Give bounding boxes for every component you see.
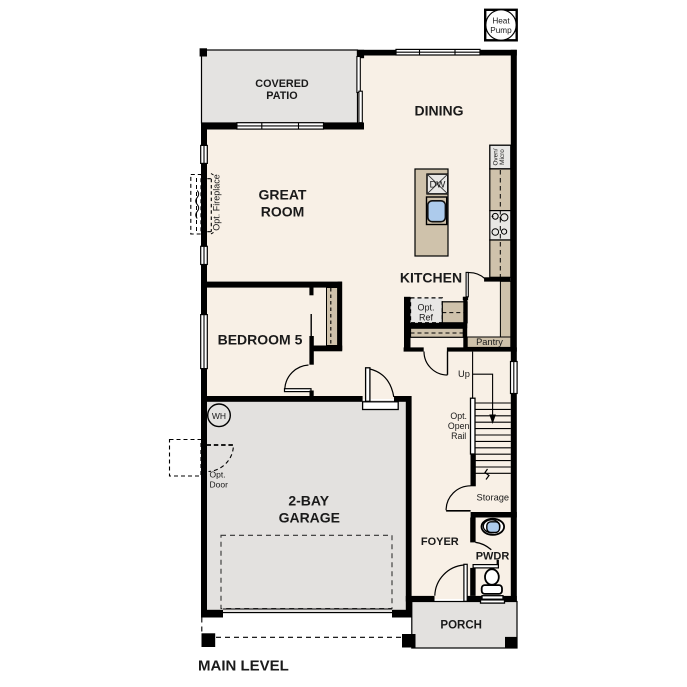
- svg-text:GARAGE: GARAGE: [279, 510, 340, 526]
- svg-text:Open: Open: [448, 421, 470, 431]
- svg-text:DW: DW: [429, 180, 445, 191]
- svg-text:BEDROOM 5: BEDROOM 5: [218, 331, 303, 347]
- svg-text:Storage: Storage: [477, 492, 510, 502]
- svg-text:DINING: DINING: [415, 103, 464, 119]
- svg-text:ROOM: ROOM: [261, 204, 305, 220]
- svg-text:PWDR: PWDR: [476, 551, 510, 563]
- svg-text:FOYER: FOYER: [421, 536, 459, 548]
- svg-text:MAIN LEVEL: MAIN LEVEL: [198, 658, 289, 675]
- svg-text:Pump: Pump: [490, 26, 512, 35]
- svg-text:GREAT: GREAT: [259, 187, 307, 203]
- svg-text:WH: WH: [212, 411, 226, 421]
- svg-text:Ref: Ref: [419, 313, 434, 323]
- svg-text:KITCHEN: KITCHEN: [400, 270, 462, 286]
- svg-text:Heat: Heat: [492, 16, 510, 25]
- svg-text:Opt.: Opt.: [450, 411, 467, 421]
- svg-text:PATIO: PATIO: [266, 90, 297, 102]
- svg-text:PORCH: PORCH: [440, 620, 482, 632]
- svg-text:COVERED: COVERED: [255, 78, 309, 90]
- svg-text:Up: Up: [458, 369, 470, 379]
- svg-text:Micro: Micro: [499, 149, 506, 165]
- svg-text:Opt.: Opt.: [210, 470, 226, 480]
- svg-text:Opt.: Opt.: [417, 303, 434, 313]
- svg-text:Pantry: Pantry: [476, 337, 503, 347]
- svg-text:2-BAY: 2-BAY: [288, 493, 329, 509]
- svg-text:Opt. Fireplace: Opt. Fireplace: [212, 174, 222, 231]
- svg-text:Rail: Rail: [451, 431, 466, 441]
- svg-text:Door: Door: [210, 480, 229, 490]
